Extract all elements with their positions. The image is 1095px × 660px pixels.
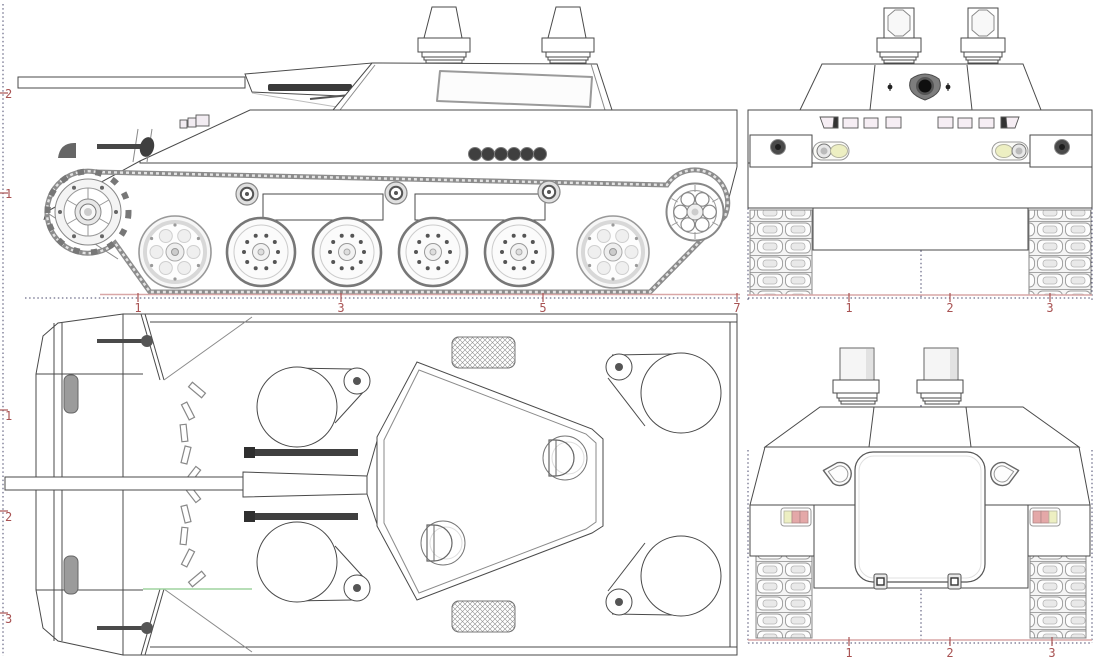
recoil-rail-end bbox=[244, 447, 255, 458]
mantlet-slot bbox=[268, 84, 352, 91]
periscope-tower-front bbox=[961, 8, 1005, 63]
scale-label: 3 bbox=[1046, 301, 1053, 315]
scale-label: 3 bbox=[5, 612, 12, 626]
top-plan-view bbox=[5, 314, 737, 655]
headlight-side bbox=[58, 143, 76, 158]
blueprint-canvas: 2 1 1 2 3 1 3 5 7 1 2 3 1 2 3 bbox=[0, 0, 1095, 660]
tail-light bbox=[1030, 508, 1060, 526]
scale-label: 1 bbox=[845, 301, 852, 315]
scale-label: 1 bbox=[134, 301, 141, 315]
periscope-tower-rear bbox=[833, 348, 879, 404]
scale-label: 2 bbox=[946, 301, 953, 315]
periscope-tower-side bbox=[542, 7, 594, 63]
scale-label: 2 bbox=[5, 510, 12, 524]
track-front-right bbox=[1029, 210, 1091, 295]
track-front-left bbox=[750, 210, 812, 295]
headlight-cluster bbox=[992, 142, 1028, 160]
side-view bbox=[18, 7, 740, 295]
antenna-rod bbox=[97, 339, 143, 343]
roof-hatch-panel bbox=[437, 71, 592, 107]
scale-label: 2 bbox=[946, 646, 953, 660]
stowage-box bbox=[263, 194, 383, 220]
scale-label: 3 bbox=[337, 301, 344, 315]
driver-periscope bbox=[196, 115, 209, 126]
periscope-tower-rear bbox=[917, 348, 963, 404]
scale-label: 1 bbox=[5, 187, 12, 201]
scale-label: 1 bbox=[5, 409, 12, 423]
scale-label: 1 bbox=[845, 646, 852, 660]
driver-periscope bbox=[180, 120, 187, 128]
engine-grille bbox=[452, 337, 515, 368]
rear-roof bbox=[765, 407, 1079, 447]
lower-glacis bbox=[813, 208, 1028, 250]
roof-hatch-d bbox=[421, 521, 465, 565]
scale-label: 7 bbox=[733, 301, 740, 315]
front-view bbox=[748, 8, 1092, 300]
gun-barrel bbox=[18, 77, 245, 88]
scale-label: 2 bbox=[5, 87, 12, 101]
hull-side bbox=[140, 110, 737, 163]
scale-label: 3 bbox=[1048, 646, 1055, 660]
mantlet-plan bbox=[243, 472, 367, 497]
blueprint-page: 2 1 1 2 3 1 3 5 7 1 2 3 1 2 3 bbox=[0, 0, 1095, 660]
driver-periscope bbox=[188, 118, 196, 127]
periscope-tower-front bbox=[877, 8, 921, 63]
gun-barrel-plan bbox=[5, 477, 243, 490]
periscope-tower-side bbox=[418, 7, 470, 63]
idler-wheel bbox=[667, 184, 724, 241]
headlight-cluster bbox=[813, 142, 849, 160]
rubber-pad bbox=[64, 375, 78, 413]
rear-door bbox=[855, 452, 985, 582]
stowage-box bbox=[415, 194, 545, 220]
tail-light bbox=[781, 508, 811, 526]
recoil-rail bbox=[250, 449, 358, 456]
roof-hatch-d bbox=[543, 436, 587, 480]
mid-front-plate bbox=[748, 163, 1092, 208]
antenna-base bbox=[141, 335, 153, 347]
rear-view bbox=[748, 348, 1092, 643]
scale-label: 5 bbox=[539, 301, 546, 315]
